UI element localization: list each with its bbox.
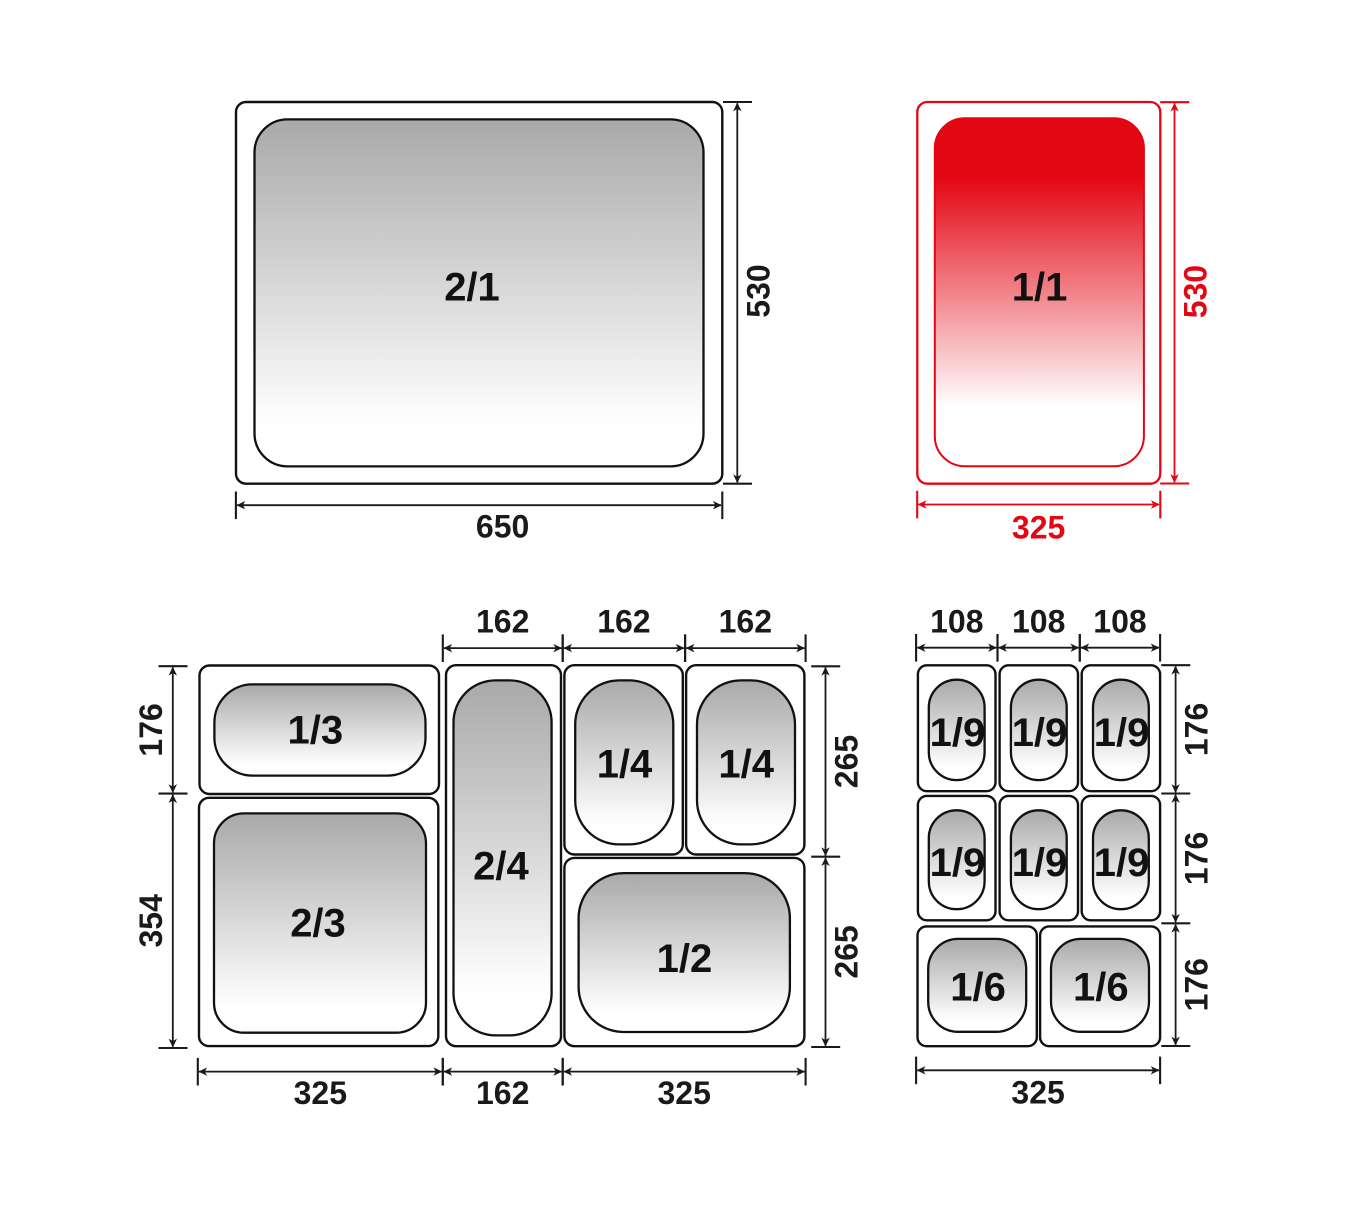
svg-text:265: 265 xyxy=(829,925,865,978)
svg-text:162: 162 xyxy=(719,603,772,639)
svg-text:265: 265 xyxy=(829,735,865,788)
svg-text:1/4: 1/4 xyxy=(718,743,774,787)
svg-text:325: 325 xyxy=(294,1075,347,1111)
svg-text:162: 162 xyxy=(597,603,650,639)
svg-text:162: 162 xyxy=(476,1075,529,1111)
svg-text:2/4: 2/4 xyxy=(473,845,529,889)
svg-text:1/2: 1/2 xyxy=(657,937,713,981)
svg-text:1/9: 1/9 xyxy=(1012,841,1068,885)
svg-text:1/9: 1/9 xyxy=(930,711,986,755)
svg-text:176: 176 xyxy=(1179,958,1215,1011)
svg-text:325: 325 xyxy=(1011,1074,1064,1110)
svg-text:108: 108 xyxy=(930,603,983,639)
svg-text:650: 650 xyxy=(476,508,529,544)
svg-text:325: 325 xyxy=(1012,509,1065,545)
svg-text:1/9: 1/9 xyxy=(1094,711,1150,755)
svg-text:1/3: 1/3 xyxy=(287,708,343,752)
svg-text:176: 176 xyxy=(133,703,169,756)
svg-text:530: 530 xyxy=(1178,265,1214,318)
svg-text:1/6: 1/6 xyxy=(950,966,1006,1010)
svg-text:1/6: 1/6 xyxy=(1073,966,1129,1010)
svg-text:325: 325 xyxy=(658,1075,711,1111)
svg-text:176: 176 xyxy=(1179,703,1215,756)
svg-text:108: 108 xyxy=(1093,603,1146,639)
svg-text:1/9: 1/9 xyxy=(930,841,986,885)
svg-text:176: 176 xyxy=(1179,832,1215,885)
svg-text:1/4: 1/4 xyxy=(597,743,653,787)
svg-text:1/1: 1/1 xyxy=(1012,266,1068,310)
svg-text:2/3: 2/3 xyxy=(290,901,346,945)
svg-text:2/1: 2/1 xyxy=(444,266,500,310)
svg-text:108: 108 xyxy=(1012,603,1065,639)
svg-text:1/9: 1/9 xyxy=(1012,711,1068,755)
svg-text:1/9: 1/9 xyxy=(1094,841,1150,885)
svg-text:354: 354 xyxy=(133,894,169,948)
svg-text:162: 162 xyxy=(476,603,529,639)
svg-text:530: 530 xyxy=(741,264,777,317)
